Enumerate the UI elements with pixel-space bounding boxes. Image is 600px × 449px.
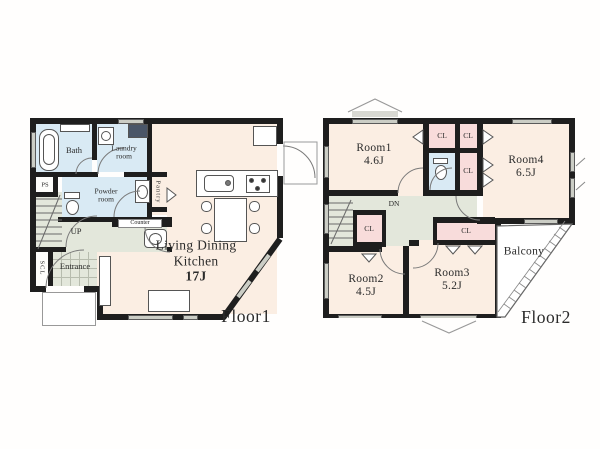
fridge-icon <box>253 126 277 146</box>
bath-counter-icon <box>60 124 90 132</box>
window <box>570 178 575 198</box>
stove-burner-icon <box>255 186 260 191</box>
wall <box>409 240 419 246</box>
window <box>324 146 329 178</box>
counter-label: Counter <box>130 220 149 226</box>
wall <box>429 190 477 196</box>
window <box>420 315 477 320</box>
wall <box>403 246 409 320</box>
stairs-area-f1 <box>36 192 62 252</box>
bathtub-inner <box>43 134 55 165</box>
dining-chair <box>249 223 260 234</box>
room2-size: 4.5J <box>348 286 383 299</box>
closet-label: CL <box>461 227 471 235</box>
wall <box>277 118 283 144</box>
room3-label: Room3 5.2J <box>434 267 469 293</box>
powder-sink-icon <box>137 185 148 199</box>
window <box>324 263 329 299</box>
wall <box>147 207 167 212</box>
toilet-tank-icon <box>433 158 448 164</box>
wall <box>437 240 495 245</box>
wall <box>36 172 98 177</box>
wall <box>353 210 357 246</box>
counter-label-box: Counter <box>118 219 162 228</box>
dining-table <box>214 198 247 242</box>
laundry-label: Laundry room <box>111 145 136 162</box>
window <box>570 152 575 172</box>
ldk-size-label: 17J <box>185 268 206 283</box>
room3-name: Room3 <box>434 267 469 280</box>
kitchen-faucet-icon <box>225 180 231 186</box>
wall <box>30 286 46 292</box>
floorplan-canvas: Counter <box>0 0 600 449</box>
closet-label: CL <box>364 225 374 233</box>
window-vent-mark <box>576 182 585 190</box>
bath-label: Bath <box>66 146 82 156</box>
pantry-label: Pantry <box>154 181 161 204</box>
ps-label: PS <box>41 181 48 188</box>
room4-size: 6.5J <box>508 167 543 180</box>
wall <box>167 217 172 227</box>
washer-door-icon <box>101 131 111 141</box>
porch-area <box>42 292 96 326</box>
laundry-storage-icon <box>128 124 148 138</box>
room4-label: Room4 6.5J <box>508 154 543 180</box>
diagonal-mask <box>283 318 600 449</box>
powder-label-line2: room <box>95 196 118 204</box>
wall <box>495 224 501 320</box>
wall <box>58 217 112 222</box>
window <box>128 315 173 320</box>
window <box>31 132 36 168</box>
window <box>324 204 329 234</box>
window <box>524 219 558 224</box>
room1-size: 4.6J <box>356 155 391 168</box>
window <box>352 119 398 124</box>
balcony-label: Balcony <box>504 246 544 259</box>
ldk-label-line2: Kitchen <box>174 253 219 268</box>
dn-label: DN <box>389 200 400 208</box>
dining-chair <box>201 201 212 212</box>
window-vent-mark <box>576 158 585 166</box>
room2-label: Room2 4.5J <box>348 273 383 299</box>
wall <box>477 124 483 196</box>
bay-window-mark <box>422 321 476 333</box>
powder-room-label: Powder room <box>95 188 118 205</box>
tv-board <box>99 256 111 306</box>
wall <box>48 252 53 286</box>
window <box>338 315 382 320</box>
wall <box>329 190 398 196</box>
wall <box>124 172 167 177</box>
wall <box>53 177 58 197</box>
closet-label: CL <box>463 167 473 175</box>
sofa <box>148 290 190 312</box>
room1-label: Room1 4.6J <box>356 142 391 168</box>
room2-name: Room2 <box>348 273 383 286</box>
floor2-title: Floor2 <box>521 308 571 328</box>
floor1-title: Floor1 <box>221 307 271 327</box>
wall <box>433 217 495 223</box>
entrance-label: Entrance <box>60 262 90 272</box>
dormer-peak-mark <box>348 99 402 112</box>
toilet-tank-icon <box>64 192 80 199</box>
balcony-outline <box>497 221 572 317</box>
room3-size: 5.2J <box>434 280 469 293</box>
room4-name: Room4 <box>508 154 543 167</box>
dining-chair <box>249 201 260 212</box>
ldk-label-line1: Living Dining <box>156 237 237 252</box>
wall <box>382 210 386 246</box>
dining-chair <box>201 223 212 234</box>
room1-name: Room1 <box>356 142 391 155</box>
wall <box>429 148 477 153</box>
laundry-label-line2: room <box>111 153 136 161</box>
dormer-sill <box>352 111 398 117</box>
closet-label: CL <box>437 132 447 140</box>
balcony-area <box>497 224 572 317</box>
scl-label: SCL <box>38 261 45 276</box>
exterior-door-frame <box>284 142 317 184</box>
balcony-hatch <box>504 227 566 309</box>
wall <box>92 124 97 160</box>
wall <box>353 242 386 247</box>
window <box>183 315 198 320</box>
wall <box>423 124 429 196</box>
exterior-door-arc <box>283 146 315 178</box>
window <box>512 119 552 124</box>
closet-label: CL <box>463 132 473 140</box>
stove-burner-icon <box>261 178 266 183</box>
up-label: UP <box>71 227 82 237</box>
stove-burner-icon <box>249 178 254 183</box>
